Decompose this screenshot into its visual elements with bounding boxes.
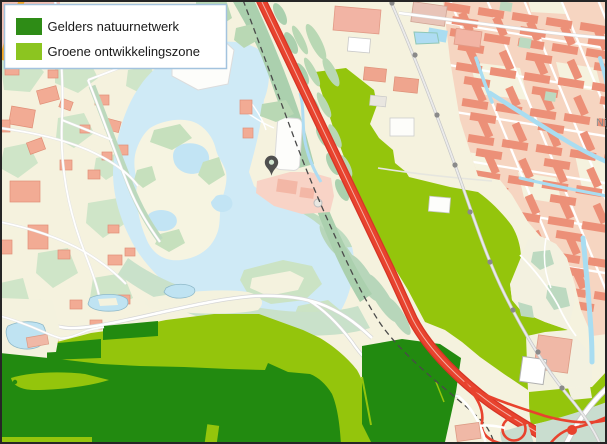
svg-text:Nij: Nij — [596, 117, 607, 129]
svg-text:Groene ontwikkelingszone: Groene ontwikkelingszone — [48, 44, 200, 59]
svg-text:Gelders natuurnetwerk: Gelders natuurnetwerk — [48, 19, 180, 34]
